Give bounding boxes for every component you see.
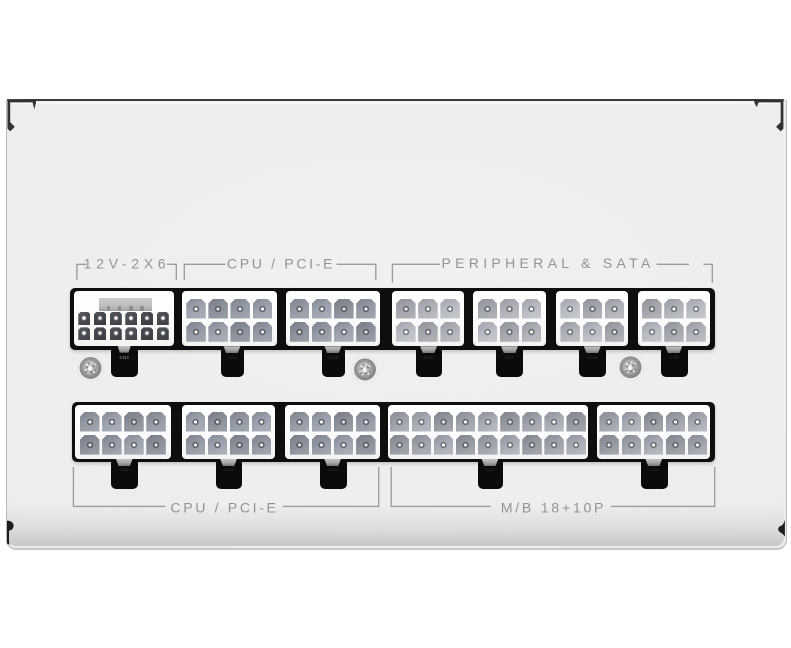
svg-text:12V-2X6: 12V-2X6: [84, 256, 171, 272]
svg-text:PERIPHERAL & SATA: PERIPHERAL & SATA: [441, 256, 654, 272]
svg-text:CPU / PCI-E: CPU / PCI-E: [170, 500, 278, 516]
svg-text:CPU / PCI-E: CPU / PCI-E: [227, 257, 335, 273]
svg-text:M/B 18+10P: M/B 18+10P: [501, 500, 606, 516]
